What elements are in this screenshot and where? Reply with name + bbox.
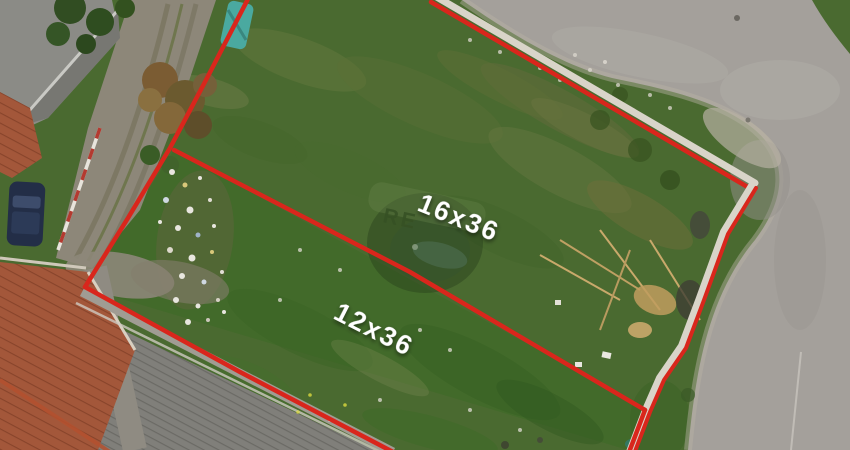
- aerial-photo: RE 16x36 12x36: [0, 0, 850, 450]
- aerial-photo-container: RE 16x36 12x36: [0, 0, 850, 450]
- parked-car: [6, 181, 45, 247]
